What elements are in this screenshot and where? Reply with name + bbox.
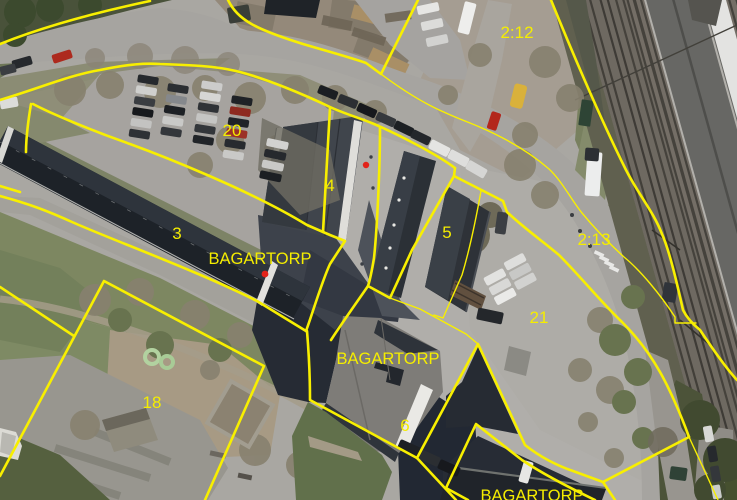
svg-text:2:13: 2:13	[577, 230, 610, 249]
svg-text:5: 5	[442, 223, 451, 242]
svg-text:BAGARTORP: BAGARTORP	[481, 487, 584, 500]
svg-text:21: 21	[530, 308, 549, 327]
svg-text:BAGARTORP: BAGARTORP	[209, 250, 312, 268]
svg-text:BAGARTORP: BAGARTORP	[337, 350, 440, 368]
svg-text:2:12: 2:12	[500, 23, 533, 42]
svg-text:6: 6	[400, 416, 409, 435]
svg-text:3: 3	[172, 224, 181, 243]
svg-text:18: 18	[143, 393, 162, 412]
svg-text:20: 20	[223, 121, 242, 140]
svg-text:4: 4	[325, 176, 334, 195]
